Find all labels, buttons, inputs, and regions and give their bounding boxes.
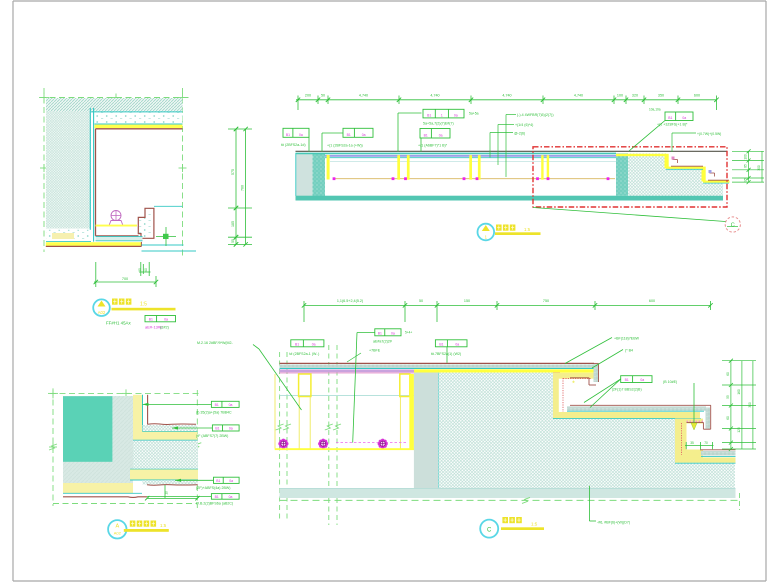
svg-text:0a: 0a [229, 427, 233, 431]
svg-text:t#.7BFS2a(1) (W2): t#.7BFS2a(1) (W2) [431, 352, 461, 356]
svg-text:0a: 0a [391, 331, 395, 335]
svg-text:M.2.16 2#BF/9*W(M2-: M.2.16 2#BF/9*W(M2- [197, 341, 234, 345]
svg-text:B1: B1 [149, 317, 153, 321]
svg-text:+BF(118)7EBW: +BF(118)7EBW [614, 337, 640, 341]
svg-text:0a: 0a [229, 403, 233, 407]
svg-text:100: 100 [617, 94, 623, 98]
svg-text:B1: B1 [215, 403, 219, 407]
svg-text:0a: 0a [164, 317, 168, 321]
svg-text:70: 70 [704, 441, 708, 445]
svg-text:4,740: 4,740 [502, 94, 511, 98]
svg-text:60: 60 [726, 416, 730, 420]
svg-text:(2F)+ABFS(4a) 2BW): (2F)+ABFS(4a) 2BW) [196, 486, 230, 490]
svg-text:0a: 0a [362, 133, 366, 137]
svg-text:-#6, #BF(6)+(W)(D7): -#6, #BF(6)+(W)(D7) [597, 521, 630, 525]
svg-text:(B 10#E): (B 10#E) [663, 380, 677, 384]
svg-text:1:5: 1:5 [140, 302, 147, 308]
svg-text:300: 300 [757, 165, 761, 171]
svg-text:B1: B1 [295, 342, 299, 346]
svg-text:1:5: 1:5 [160, 523, 167, 528]
svg-text:B1: B1 [286, 133, 290, 137]
svg-text:0a: 0a [682, 116, 686, 120]
svg-text:40: 40 [144, 268, 148, 272]
svg-text:0a: 0a [312, 342, 316, 346]
svg-text:55: 55 [726, 395, 730, 399]
svg-text:1,1(6.5+2,4(5.2): 1,1(6.5+2,4(5.2) [337, 299, 363, 303]
svg-text:B1: B1 [216, 479, 220, 483]
svg-text:0a: 0a [439, 134, 443, 138]
svg-text:0a: 0a [229, 479, 233, 483]
svg-text:+(1 (A6BF7)*1 B)*: +(1 (A6BF7)*1 B)* [418, 144, 448, 148]
svg-text:50: 50 [419, 299, 423, 303]
svg-text:t#.B.2(2)BFS6a (aB2C): t#.B.2(2)BFS6a (aB2C) [196, 502, 233, 506]
svg-text:0a: 0a [299, 133, 303, 137]
svg-text:(-).4 4WFBR(7)5)(2(7)): (-).4 4WFBR(7)5)(2(7)) [517, 113, 554, 117]
svg-text:+7BFE: +7BFE [369, 349, 381, 353]
svg-text:60: 60 [726, 372, 730, 376]
svg-text:B1: B1 [439, 342, 443, 346]
svg-text:10a,10a: 10a,10a [649, 108, 661, 112]
svg-text:300: 300 [748, 402, 752, 408]
svg-text:5a+5a: 5a+5a [469, 112, 479, 116]
svg-text:700: 700 [122, 277, 128, 281]
svg-text:600: 600 [649, 299, 655, 303]
svg-text:C: C [487, 528, 492, 534]
svg-text:@-2(6): @-2(6) [514, 132, 525, 136]
svg-text:(2F(1)7 BBS2(2)B): (2F(1)7 BBS2(2)B) [612, 388, 642, 392]
svg-text:185: 185 [231, 221, 235, 227]
svg-text:5+4+: 5+4+ [405, 331, 412, 335]
svg-text:160: 160 [737, 389, 741, 395]
svg-text:FF#H1 45Ax: FF#H1 45Ax [106, 321, 131, 326]
svg-text:1: 1 [485, 235, 488, 240]
svg-text:t# (2BFS2a-1 (W..): t# (2BFS2a-1 (W..) [289, 352, 319, 356]
svg-text:50: 50 [321, 94, 325, 98]
svg-text:A: A [115, 524, 119, 530]
svg-text:t# (2BFS2a-1d): t# (2BFS2a-1d) [281, 143, 306, 147]
svg-text:B1: B1 [625, 378, 629, 382]
svg-text:1: 1 [441, 114, 443, 118]
svg-text:0a: 0a [229, 495, 233, 499]
svg-text:760: 760 [241, 185, 245, 191]
svg-text:0a: 0a [454, 114, 458, 118]
svg-text:350: 350 [658, 94, 664, 98]
svg-text:B1: B1 [215, 495, 219, 499]
svg-text:*: * [572, 381, 575, 388]
svg-text:A02: A02 [98, 310, 106, 315]
svg-text:+(1 (2BFS2a-1a (+W)): +(1 (2BFS2a-1a (+W)) [327, 144, 363, 148]
svg-text:C: C [731, 223, 735, 229]
svg-text:55: 55 [231, 239, 235, 243]
svg-text:(tF (ABFS7)7) 2BW): (tF (ABFS7)7) 2BW) [196, 434, 228, 438]
svg-text:+(0.7W)+(0.5W): +(0.7W)+(0.5W) [697, 132, 721, 136]
svg-text:0a: 0a [455, 342, 459, 346]
svg-text:0a: 0a [640, 378, 644, 382]
svg-text:750: 750 [543, 299, 549, 303]
svg-text:1:5: 1:5 [524, 227, 531, 232]
svg-text:(* B4: (* B4 [625, 349, 633, 353]
svg-text:(t) 35(2)a+(5a) 7BB4C: (t) 35(2)a+(5a) 7BB4C [196, 411, 232, 415]
svg-text:A02: A02 [114, 531, 122, 536]
svg-text:600: 600 [694, 94, 700, 98]
svg-text:150: 150 [464, 299, 470, 303]
svg-text:(2#2): (2#2) [160, 325, 170, 329]
svg-text:B1: B1 [215, 427, 219, 431]
svg-text:320: 320 [632, 94, 638, 98]
svg-text:B1: B1 [424, 134, 428, 138]
svg-text:200: 200 [305, 94, 311, 98]
svg-text:5a+5a,7(2)(7)E#(7): 5a+5a,7(2)(7)E#(7) [423, 122, 454, 126]
svg-text:B1: B1 [668, 116, 672, 120]
svg-text:120: 120 [737, 427, 741, 433]
svg-text:B1: B1 [347, 133, 351, 137]
svg-text:B1: B1 [427, 114, 431, 118]
svg-text:4,740: 4,740 [430, 94, 439, 98]
svg-text:10: 10 [138, 268, 142, 272]
svg-text:B1: B1 [378, 331, 382, 335]
svg-text:aE#a7(2)2#: aE#a7(2)2# [373, 340, 392, 344]
svg-text:85: 85 [744, 164, 748, 168]
svg-text:10: 10 [165, 491, 169, 495]
svg-text:100: 100 [744, 154, 748, 160]
svg-text:95: 95 [744, 178, 748, 182]
svg-text:35: 35 [690, 441, 694, 445]
svg-text:1:5: 1:5 [531, 522, 538, 527]
svg-text:575: 575 [231, 169, 235, 175]
svg-text:+(1/4 (6)*4): +(1/4 (6)*4) [515, 123, 533, 127]
svg-text:4,740: 4,740 [574, 94, 583, 98]
svg-text:4,740: 4,740 [359, 94, 368, 98]
